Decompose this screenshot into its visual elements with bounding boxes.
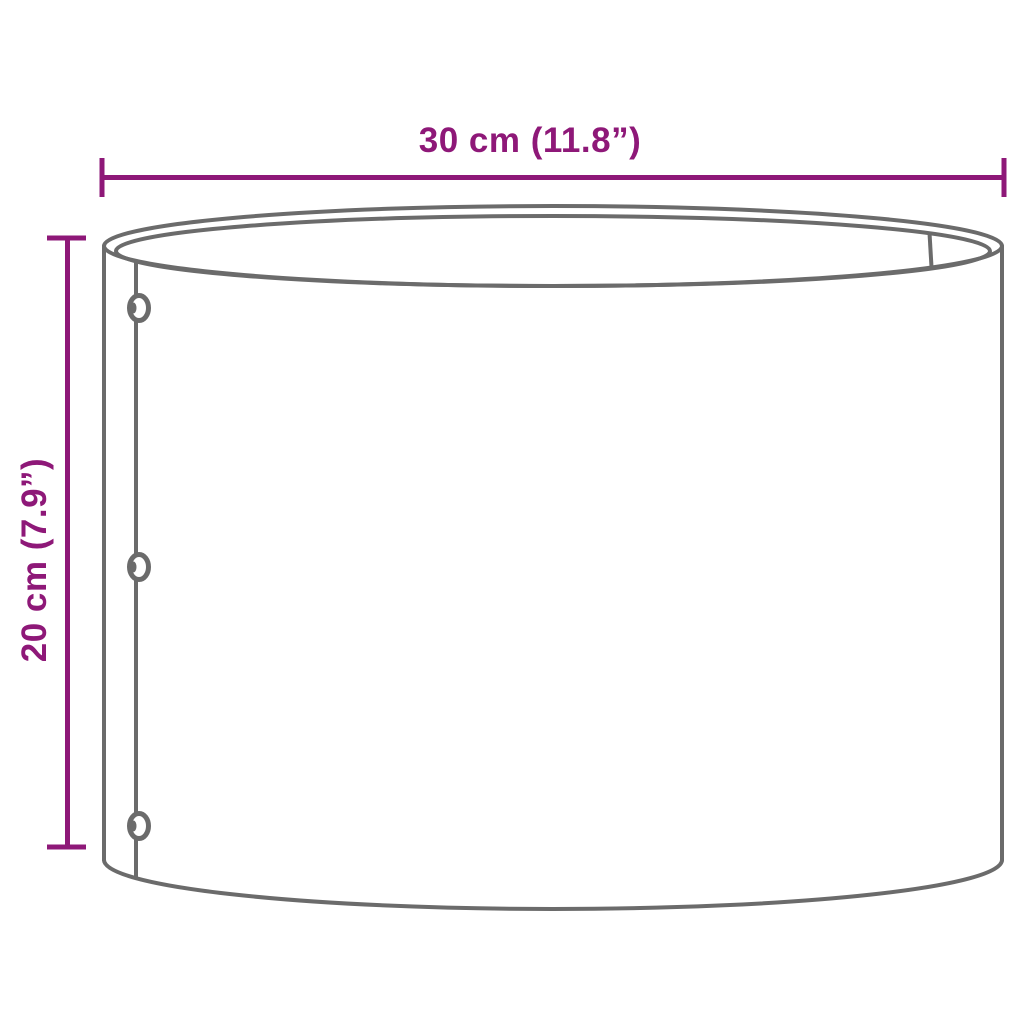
rivet-icon [130,555,149,580]
planter-illustration [104,206,1002,909]
planter-inner-seam [930,233,932,267]
width-dimension [102,158,1004,197]
rivet-icon [130,296,149,321]
diagram-svg: 30 cm (11.8”) 20 cm (7.9”) [0,0,1024,1024]
dimension-diagram: 30 cm (11.8”) 20 cm (7.9”) [0,0,1024,1024]
width-dimension-label: 30 cm (11.8”) [419,121,641,160]
rivet-icon [130,814,149,839]
planter-bottom-edge [104,860,1002,909]
height-dimension-label: 20 cm (7.9”) [15,458,54,662]
